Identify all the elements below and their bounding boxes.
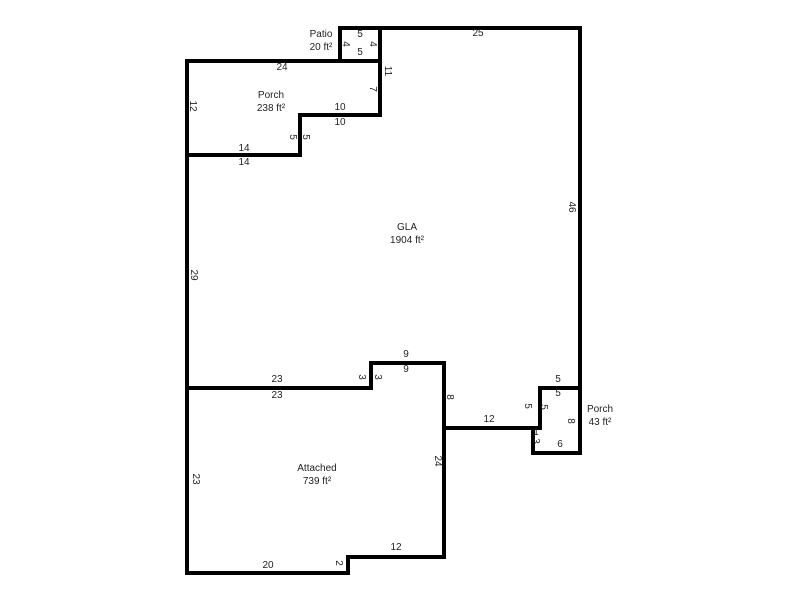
dimension-label: 12 <box>390 543 401 553</box>
dimension-label: 1 <box>533 428 539 438</box>
floorplan-walls <box>0 0 800 600</box>
dimension-label: 9 <box>403 350 409 360</box>
dimension-label: 3 <box>356 374 366 380</box>
dimension-label: 23 <box>190 473 200 484</box>
dimension-label: 2 <box>333 560 343 566</box>
dimension-label: 20 <box>262 561 273 571</box>
gla-name: GLA <box>390 221 424 234</box>
dimension-label: 5 <box>555 389 561 399</box>
porch-left-area: 238 ft² <box>257 102 285 115</box>
dimension-label: 11 <box>382 66 392 76</box>
dimension-label: 14 <box>238 158 249 168</box>
porch-right-label: Porch 43 ft² <box>587 403 613 429</box>
patio-label: Patio 20 ft² <box>310 28 333 54</box>
dimension-label: 5 <box>357 48 363 58</box>
dimension-label: 5 <box>555 375 561 385</box>
dimension-label: 12 <box>187 100 197 111</box>
dimension-label: 23 <box>271 375 282 385</box>
patio-area: 20 ft² <box>310 41 333 54</box>
dimension-label: 4 <box>340 41 350 47</box>
attached-name: Attached <box>297 462 336 475</box>
dimension-label: 29 <box>188 269 198 280</box>
dimension-label: 6 <box>557 440 563 450</box>
gla-label: GLA 1904 ft² <box>390 221 424 247</box>
attached-area: 739 ft² <box>297 475 336 488</box>
dimension-label: 5 <box>287 134 297 140</box>
dimension-label: 8 <box>444 394 454 400</box>
floorplan-sketch: Patio 20 ft² Porch 238 ft² GLA 1904 ft² … <box>0 0 800 600</box>
dimension-label: 23 <box>271 391 282 401</box>
dimension-label: 24 <box>432 455 442 466</box>
dimension-label: 46 <box>566 201 576 212</box>
dimension-label: 10 <box>334 118 345 128</box>
dimension-label: 3 <box>372 374 382 380</box>
porch-right-area: 43 ft² <box>587 416 613 429</box>
dimension-label: 4 <box>367 41 377 47</box>
dimension-label: 5 <box>538 404 548 410</box>
patio-name: Patio <box>310 28 333 41</box>
porch-left-label: Porch 238 ft² <box>257 89 285 115</box>
dimension-label: 5 <box>522 403 532 409</box>
dimension-label: 12 <box>483 415 494 425</box>
dimension-label: 7 <box>367 86 377 92</box>
dimension-label: 9 <box>403 365 409 375</box>
dimension-label: 3 <box>530 438 540 444</box>
dimension-label: 10 <box>334 103 345 113</box>
dimension-label: 25 <box>472 29 483 39</box>
dimension-label: 14 <box>238 144 249 154</box>
dimension-label: 24 <box>276 63 287 73</box>
dimension-label: 8 <box>565 418 575 424</box>
gla-area: 1904 ft² <box>390 234 424 247</box>
gla-outline <box>187 28 580 428</box>
dimension-label: 5 <box>357 30 363 40</box>
dimension-label: 5 <box>300 134 310 140</box>
porch-left-name: Porch <box>257 89 285 102</box>
porch-right-name: Porch <box>587 403 613 416</box>
attached-label: Attached 739 ft² <box>297 462 336 488</box>
